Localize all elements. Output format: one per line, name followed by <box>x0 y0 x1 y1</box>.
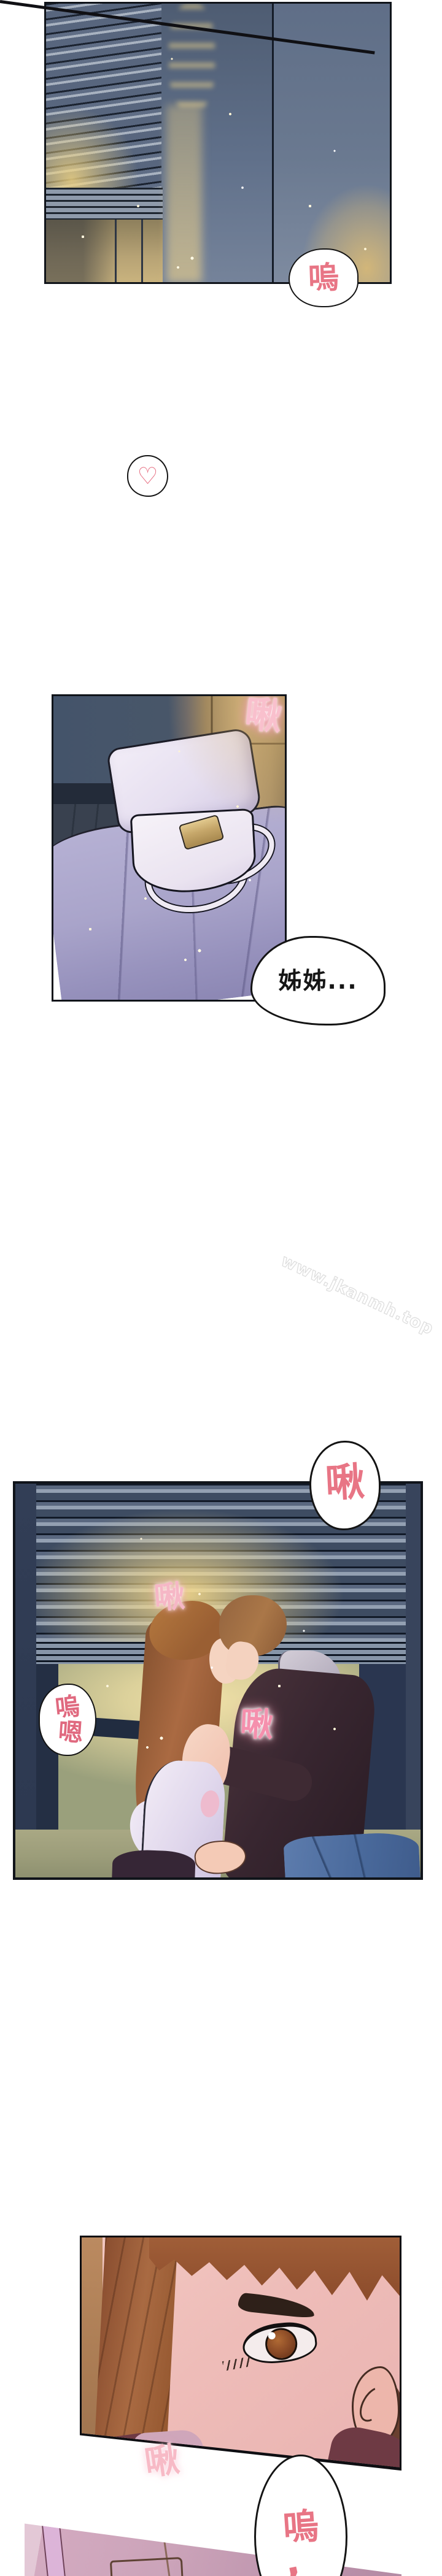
light-streak-art <box>166 105 202 283</box>
comic-page: 嗚 ♡ 啾 姊姊... www.jkanmh.top 啾 <box>0 0 442 2576</box>
panel-night-window <box>44 2 392 284</box>
speech-bubble-sister: 姊姊... <box>250 936 386 1025</box>
speech-bubble-sob: 嗚 <box>289 248 359 307</box>
sfx-kiss-text: 啾 <box>153 1581 185 1613</box>
blinds-art <box>46 4 161 189</box>
speech-bubble-moan: 嗚 嗯 <box>39 1684 96 1756</box>
speech-bubble-sob-bottom: 嗚 , <box>254 2455 347 2576</box>
moan-text-2: 嗯 <box>58 1719 84 1746</box>
blinds-bottom-stack-art <box>46 188 163 221</box>
sister-text: 姊姊... <box>278 969 357 992</box>
sfx-kiss-text: 啾 <box>142 2442 181 2481</box>
blush-lines-art <box>222 2356 252 2371</box>
sfx-kiss-text: 啾 <box>243 696 284 736</box>
warm-light-overlay <box>53 696 285 1000</box>
hair-bottom-art <box>82 2433 151 2486</box>
panel-face-closeup <box>80 2236 401 2488</box>
heart-bubble: ♡ <box>127 455 168 497</box>
strap-art <box>41 2521 65 2576</box>
site-watermark: www.jkanmh.top <box>278 1251 436 1338</box>
sob-comma: , <box>282 2553 300 2572</box>
light-bands-art <box>169 4 215 111</box>
girl-skirt-art <box>112 1849 196 1880</box>
wall-right-column <box>406 1484 421 1877</box>
iris-art <box>264 2326 299 2361</box>
eye-art <box>241 2320 319 2366</box>
boy-jeans-art <box>283 1831 421 1880</box>
lamp-lit-wall-art <box>46 220 163 282</box>
heart-icon: ♡ <box>137 464 158 488</box>
eyebrow-art <box>238 2293 316 2319</box>
sfx-kiss-glow-text: 啾 <box>239 1708 274 1742</box>
moan-text-1: 嗚 <box>54 1694 81 1721</box>
bangs-art <box>149 2237 400 2306</box>
panel-bed-bag: 啾 <box>52 694 287 1002</box>
face-closeup-art <box>82 2237 400 2486</box>
speech-bubble-kiss: 啾 <box>309 1441 381 1530</box>
sob-text: 嗚 <box>308 262 339 294</box>
kiss-text: 啾 <box>324 1462 365 1503</box>
pocket-outline-art <box>110 2557 184 2576</box>
panel-couple-kiss: 啾 啾 嗚 嗯 <box>13 1481 423 1880</box>
